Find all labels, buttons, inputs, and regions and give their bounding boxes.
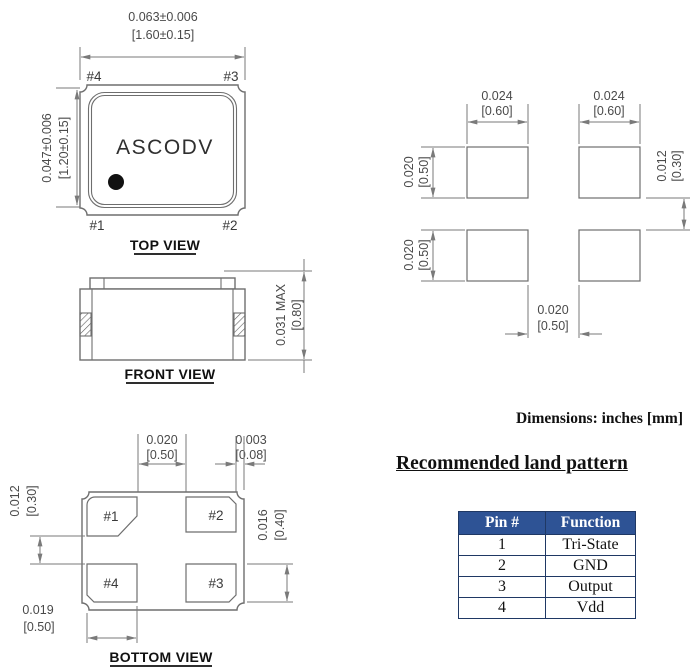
side-castellation-right (234, 313, 245, 336)
front-height-dim-mm: [0.80] (290, 299, 304, 330)
pin-number: 1 (459, 535, 546, 556)
bottom-row-gap-mm: [0.30] (25, 485, 39, 516)
top-view-label: TOP VIEW (130, 237, 201, 253)
top-view-height-dim-mm: [1.20±0.15] (57, 117, 71, 179)
bottom-pad-gap-in: 0.020 (146, 433, 177, 447)
table-row: 3 Output (459, 577, 636, 598)
bottom-pad-height-mm: [0.40] (273, 509, 287, 540)
pin-function: Output (546, 577, 636, 598)
front-height-dim-in: 0.031 MAX (274, 283, 288, 346)
pin-number: 2 (459, 556, 546, 577)
front-view: 0.031 MAX [0.80] FRONT VIEW (80, 259, 312, 383)
pad-width-right-in: 0.024 (593, 89, 624, 103)
bottom-pad-label-4: #4 (103, 576, 119, 591)
land-pad-bottom-left (467, 230, 528, 281)
pad-width-left-in: 0.024 (481, 89, 512, 103)
pin-label-4: #4 (86, 69, 102, 84)
package-lid (90, 278, 235, 289)
bottom-pad-height-in: 0.016 (256, 509, 270, 540)
pin-number: 3 (459, 577, 546, 598)
bottom-row-gap-in: 0.012 (8, 485, 22, 516)
pin-column-header: Pin # (459, 512, 546, 535)
table-header-row: Pin # Function (459, 512, 636, 535)
part-marking: ASCODV (116, 136, 214, 159)
top-view-width-dim-in: 0.063±0.006 (128, 10, 197, 24)
bottom-view: 0.020 [0.50] 0.003 [0.08] #1 #2 #4 #3 0.… (8, 433, 293, 666)
pad-height-bottom-mm: [0.50] (417, 239, 431, 270)
pin-function: Tri-State (546, 535, 636, 556)
table-row: 1 Tri-State (459, 535, 636, 556)
pin-label-3: #3 (223, 69, 238, 84)
top-view-width-dim-mm: [1.60±0.15] (132, 28, 194, 42)
col-gap-mm: [0.50] (537, 319, 568, 333)
bottom-view-label: BOTTOM VIEW (109, 649, 213, 665)
side-castellation-left (80, 313, 91, 336)
land-pattern-heading: Recommended land pattern (396, 453, 628, 475)
package-body-front (80, 289, 245, 360)
pad-height-top-in: 0.020 (402, 156, 416, 187)
edge-gap-in: 0.003 (235, 433, 266, 447)
top-view-height-dim-in: 0.047±0.006 (40, 113, 54, 182)
bottom-pad-label-3: #3 (208, 576, 223, 591)
pin-number: 4 (459, 598, 546, 619)
datasheet-page: 0.063±0.006 [1.60±0.15] 0.047±0.006 [1.2… (0, 0, 690, 671)
land-pattern-drawing: 0.024 [0.60] 0.024 [0.60] 0.020 [0.50] 0… (402, 89, 690, 338)
top-view: 0.063±0.006 [1.60±0.15] 0.047±0.006 [1.2… (40, 10, 245, 254)
table-row: 2 GND (459, 556, 636, 577)
pad-height-top-mm: [0.50] (417, 156, 431, 187)
pin-label-2: #2 (222, 218, 237, 233)
col-gap-in: 0.020 (537, 303, 568, 317)
function-column-header: Function (546, 512, 636, 535)
pin-function-table: Pin # Function 1 Tri-State 2 GND 3 Outpu… (458, 511, 636, 619)
pin-function: Vdd (546, 598, 636, 619)
bottom-pad-gap-mm: [0.50] (146, 448, 177, 462)
row-gap-mm: [0.30] (670, 150, 684, 181)
pin-function: GND (546, 556, 636, 577)
bottom-pad-label-2: #2 (208, 508, 223, 523)
front-view-label: FRONT VIEW (125, 366, 216, 382)
pad-width-right-mm: [0.60] (593, 104, 624, 118)
pin-label-1: #1 (89, 218, 104, 233)
pad-height-bottom-in: 0.020 (402, 239, 416, 270)
bottom-pad-width-in: 0.019 (22, 603, 53, 617)
table-row: 4 Vdd (459, 598, 636, 619)
land-pad-top-left (467, 147, 528, 198)
land-pad-top-right (579, 147, 640, 198)
units-note: Dimensions: inches [mm] (483, 410, 683, 428)
edge-gap-mm: [0.08] (235, 448, 266, 462)
pad-width-left-mm: [0.60] (481, 104, 512, 118)
pin1-indicator-dot (108, 174, 124, 190)
bottom-pad-label-1: #1 (103, 509, 118, 524)
row-gap-in: 0.012 (655, 150, 669, 181)
land-pad-bottom-right (579, 230, 640, 281)
bottom-pad-width-mm: [0.50] (23, 620, 54, 634)
